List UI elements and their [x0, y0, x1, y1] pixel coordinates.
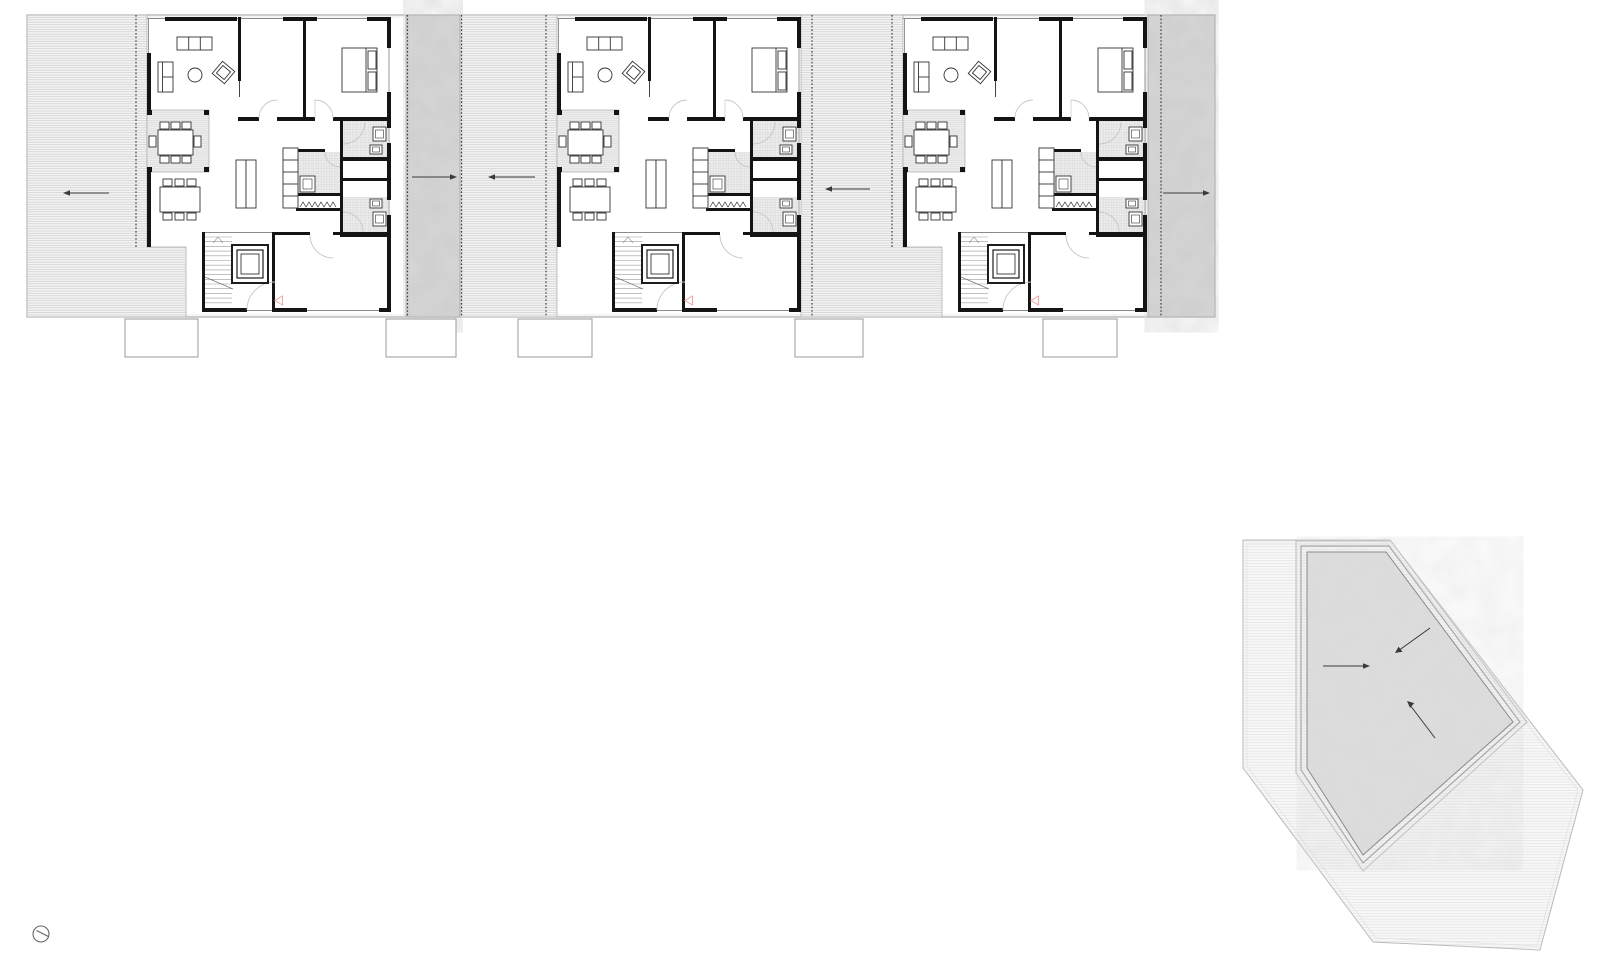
porch [795, 319, 863, 357]
north-symbol [33, 926, 49, 942]
floor-plan-drawing [0, 0, 1600, 960]
building-strip [27, 15, 1215, 357]
drawing-canvas [0, 0, 1600, 960]
concrete-strip-right [1148, 15, 1215, 317]
site-plan [1243, 540, 1583, 950]
entry-porches [125, 319, 1117, 357]
porch [518, 319, 592, 357]
compass-circle [33, 926, 49, 942]
porch [386, 319, 456, 357]
compass-needle [37, 931, 49, 937]
concrete-strip-1 [406, 15, 460, 317]
walkway-strip [460, 15, 557, 317]
porch [1043, 319, 1117, 357]
circulation-arrows [63, 174, 1210, 195]
unit-2 [557, 17, 801, 312]
porch [125, 319, 198, 357]
